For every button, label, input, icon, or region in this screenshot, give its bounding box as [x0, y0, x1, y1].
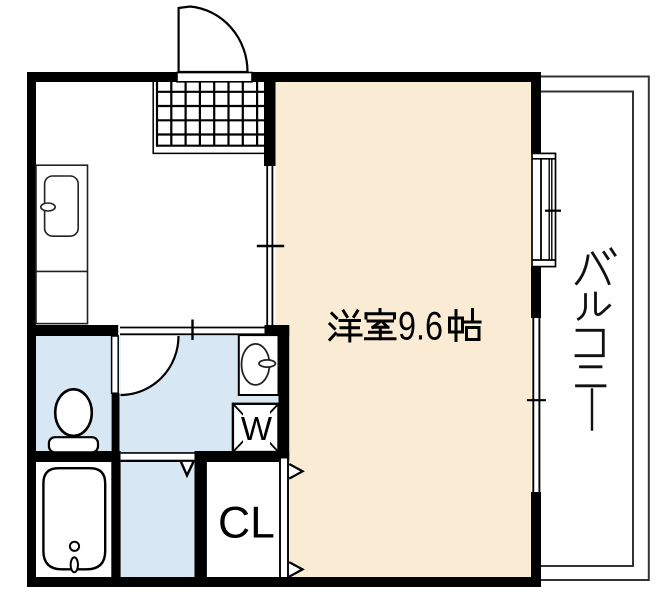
svg-text:9.6: 9.6	[398, 305, 443, 349]
svg-text:W: W	[241, 410, 273, 447]
svg-text:CL: CL	[218, 499, 275, 548]
